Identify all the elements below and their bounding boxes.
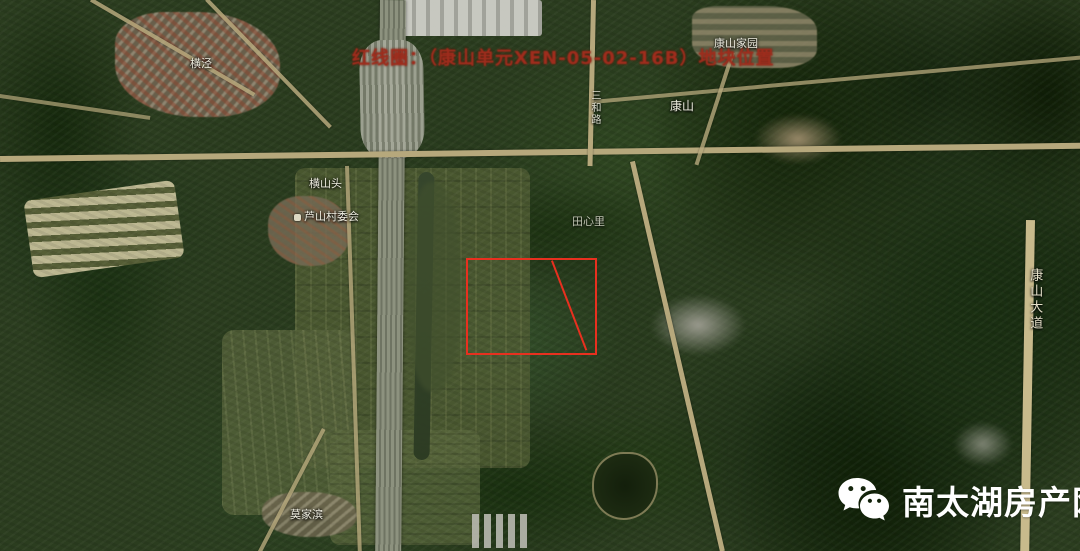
banner-plot-title: 红线圈：（康山单元XEN-05-02-16B）地块位置 — [352, 44, 775, 70]
label-mojiabin: 莫家滨 — [290, 509, 323, 521]
clearing-southeast — [952, 418, 1014, 470]
label-tianxinli: 田心里 — [572, 216, 605, 228]
label-hengshantou: 横山头 — [309, 178, 342, 190]
label-lushan-text: 芦山村委会 — [304, 210, 359, 223]
farmland-south — [330, 430, 480, 545]
label-village-nw: 横泾 — [190, 58, 212, 70]
road-north-vertical — [588, 0, 596, 166]
quarry-northeast — [752, 110, 844, 168]
satellite-map[interactable]: 横泾 康山家园 康山 三和路 横山头 芦山村委会 田心里 康山大道 莫家滨 红线… — [0, 0, 1080, 551]
buildings-bottom-center — [472, 514, 527, 548]
wetland-strip — [406, 182, 461, 392]
plot-boundary-rectangle — [466, 258, 597, 355]
label-lushan-village-committee: 芦山村委会 — [294, 211, 359, 223]
poi-marker-icon — [294, 214, 301, 221]
wechat-icon — [836, 476, 892, 524]
village-lushan — [268, 196, 350, 266]
label-sanhe-road: 三和路 — [589, 90, 600, 126]
watermark-text: 南太湖房产网 — [902, 476, 1080, 524]
watermark: 南太湖房产网 — [836, 476, 1080, 524]
label-kangshan: 康山 — [670, 100, 694, 113]
industrial-buildings-top — [402, 0, 542, 36]
label-kangshan-avenue: 康山大道 — [1027, 268, 1041, 332]
